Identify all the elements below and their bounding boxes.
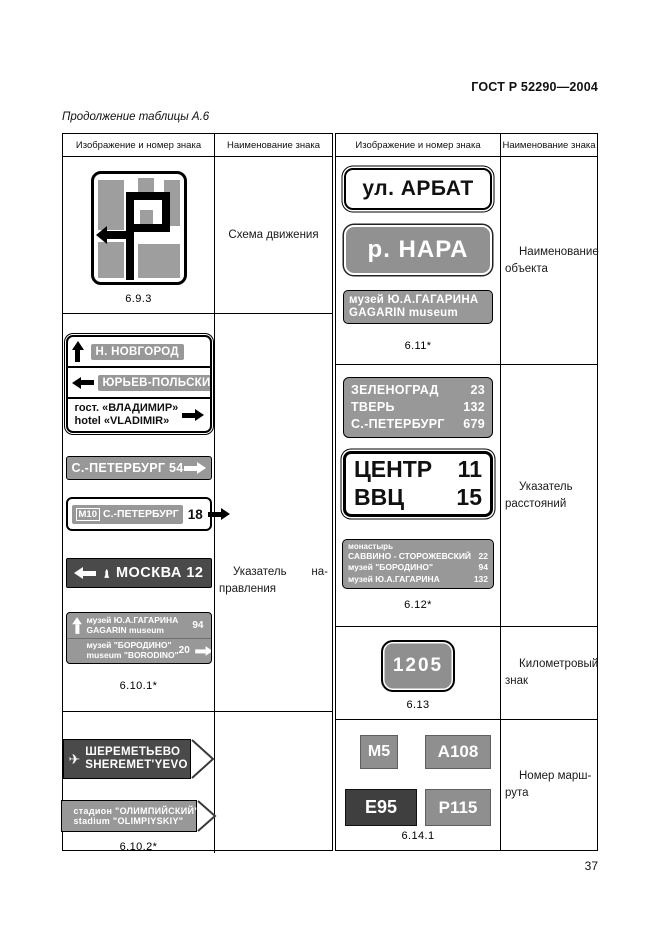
signs-table: Изображение и номер знака Наименование з… [62,133,598,851]
chevron-tip-icon [191,739,215,779]
direction-row: музей Ю.А.ГАГАРИНА GAGARIN museum 94 [67,613,211,638]
route-plate: А108 [425,735,491,769]
sign-number: 6.14.1 [402,830,435,842]
destination-label: музей "БОРОДИНО" museum "BORODINO" [87,641,179,661]
sign-6-12-distance-board-gray: ЗЕЛЕНОГРАД23 ТВЕРЬ132 С.-ПЕТЕРБУРГ679 [343,377,493,438]
sign-6-11-museum-name: музей Ю.А.ГАГАРИНА GAGARIN museum [343,290,493,324]
table-header-row: Изображение и номер знака Наименование з… [63,134,332,157]
destination-label: МОСКВА 12 [116,565,204,581]
route-plate: Е95 [345,789,417,826]
table-row: ЗЕЛЕНОГРАД23 ТВЕРЬ132 С.-ПЕТЕРБУРГ679 ЦЕ… [336,365,597,627]
sign-image-cell: 1205 6.13 [336,627,501,719]
sign-number: 6.12* [404,599,432,611]
direction-row: Н. НОВГОРОД [68,337,210,366]
sign-image-cell: ЗЕЛЕНОГРАД23 ТВЕРЬ132 С.-ПЕТЕРБУРГ679 ЦЕ… [336,365,501,626]
table-continuation-caption: Продолжение таблицы А.6 [62,111,209,123]
sign-name: Указатель расстояний [505,479,593,512]
city-block [98,242,124,278]
distance-value: 94 [192,620,203,631]
route-number-badge: М10 [76,508,100,521]
destination-label: ЮРЬЕВ-ПОЛЬСКИЙ [98,375,212,391]
city-block [138,244,180,278]
sign-6-11-river-name: р. НАРА [344,225,492,275]
sign-name: Указатель на- правления [219,564,328,597]
sign-name: Километровый знак [505,656,598,689]
sign-6-10-2-olimpiyskiy: стадион "ОЛИМПИЙСКИЙ" stadium "OLIMPIYSK… [61,800,217,832]
sign-6-12-distance-board-white: ЦЕНТР11 ВВЦ15 [343,451,493,517]
direction-row: музей "БОРОДИНО" museum "BORODINO" 20 [67,638,211,663]
left-arrow-icon [72,377,94,389]
distance-value: 20 [179,645,190,656]
sign-6-11-street-name: ул. АРБАТ [344,168,492,210]
sign-number: 6.10.2* [120,841,158,853]
table-header-row: Изображение и номер знака Наименование з… [336,134,597,157]
sign-name-cell: Схема движения [215,157,332,313]
header-image-and-number: Изображение и номер знака [336,134,501,156]
left-arrow-icon [96,226,107,244]
destination-label: музей Ю.А.ГАГАРИНА GAGARIN museum [87,616,179,636]
route-plate: М5 [360,735,398,769]
monument-icon [104,565,109,582]
destination-label: ШЕРЕМЕТЬЕВО SHEREMET'YEVO [85,746,188,772]
sign-6-10-2-sheremetyevo: ✈ ШЕРЕМЕТЬЕВО SHEREMET'YEVO 3 [63,739,215,779]
city-block [138,178,154,193]
sign-image-cell: 6.9.3 [63,157,215,313]
left-arrow-icon [74,567,96,579]
route-panel: М10 С.-ПЕТЕРБУРГ [72,505,183,524]
sign-6-14-1-route-plates: М5 А108 Е95 Р115 [336,720,500,826]
sign-6-12-distance-board-small: монастырь САВВИНО - СТОРОЖЕВСКИЙ22 музей… [342,539,494,589]
destination-label: гост. «ВЛАДИМИР» hotel «VLADIMIR» [75,402,179,427]
sign-6-10-1-museums-panel: музей Ю.А.ГАГАРИНА GAGARIN museum 94 муз… [66,612,212,664]
sign-image-cell: Н. НОВГОРОД ЮРЬЕВ-ПОЛЬСКИЙ гост. «ВЛАДИМ… [63,314,215,711]
table-row: 1205 6.13 Километровый знак [336,627,597,720]
sign-number: 6.10.1* [120,680,158,692]
sign-name: Схема движения [219,227,328,244]
standard-number: ГОСТ Р 52290—2004 [471,80,598,94]
document-page: ГОСТ Р 52290—2004 Продолжение таблицы А.… [0,0,661,936]
sign-name: Номер марш- рута [505,768,593,801]
route-arrow-shaft [106,231,128,239]
sign-number: 6.9.3 [125,293,151,305]
sign-6-9-3-route-schema [91,171,187,285]
table-right-half: Изображение и номер знака Наименование з… [335,133,598,851]
table-row: ✈ ШЕРЕМЕТЬЕВО SHEREMET'YEVO 3 [63,712,332,853]
sign-6-10-1-direction-panel: Н. НОВГОРОД ЮРЬЕВ-ПОЛЬСКИЙ гост. «ВЛАДИМ… [66,335,212,433]
sign-image-cell: М5 А108 Е95 Р115 6.14.1 [336,720,501,850]
sign-6-10-1-moscow: МОСКВА 12 [66,558,212,588]
table-row: ул. АРБАТ р. НАРА музей Ю.А.ГАГАРИНА GAG… [336,157,597,365]
sign-6-13-kilometre: 1205 [381,640,455,692]
route-loop [126,192,170,232]
sign-name-cell: Наименование объекта [501,157,603,364]
destination-label: Н. НОВГОРОД [91,344,184,360]
route-plate: Р115 [425,789,491,826]
sign-name-cell: Километровый знак [501,627,602,719]
table-left-half: Изображение и номер знака Наименование з… [62,133,333,851]
header-image-and-number: Изображение и номер знака [63,134,215,156]
sign-name: Наименование объекта [505,244,599,277]
direction-row: ЮРЬЕВ-ПОЛЬСКИЙ [68,366,210,399]
sign-6-10-1-m10-petersburg: М10 С.-ПЕТЕРБУРГ 18 [66,497,212,531]
right-arrow-icon [182,409,204,421]
distance-value: 18 [188,507,203,522]
sign-number: 6.11* [405,340,432,352]
direction-row: гост. «ВЛАДИМИР» hotel «VLADIMIR» [68,399,210,431]
sign-image-cell: ул. АРБАТ р. НАРА музей Ю.А.ГАГАРИНА GAG… [336,157,501,364]
destination-label: С.-ПЕТЕРБУРГ 54 [72,461,184,475]
page-number: 37 [585,859,598,873]
up-arrow-icon [72,341,84,362]
table-row: М5 А108 Е95 Р115 6.14.1 Номер марш- рута [336,720,597,850]
chevron-tip-icon [197,800,217,832]
table-row: 6.9.3 Схема движения [63,157,332,314]
sign-6-10-1-petersburg-54: С.-ПЕТЕРБУРГ 54 [66,456,212,480]
sign-name-cell [215,712,332,853]
header-sign-name: Наименование знака [215,134,332,156]
header-sign-name: Наименование знака [501,134,597,156]
sign-name-cell: Указатель расстояний [501,365,597,626]
airplane-icon: ✈ [69,751,81,768]
destination-label: стадион "ОЛИМПИЙСКИЙ" stadium "OLIMPIYSK… [74,806,199,826]
city-block [98,180,124,230]
right-arrow-icon [184,462,206,474]
sign-number: 6.13 [406,699,429,711]
destination-label: С.-ПЕТЕРБУРГ [103,508,179,520]
sign-name-cell: Указатель на- правления [215,314,332,711]
table-row: Н. НОВГОРОД ЮРЬЕВ-ПОЛЬСКИЙ гост. «ВЛАДИМ… [63,314,332,712]
sign-name-cell: Номер марш- рута [501,720,597,850]
right-arrow-icon [195,646,212,656]
sign-image-cell: ✈ ШЕРЕМЕТЬЕВО SHEREMET'YEVO 3 [63,712,215,853]
up-arrow-icon [72,617,82,634]
